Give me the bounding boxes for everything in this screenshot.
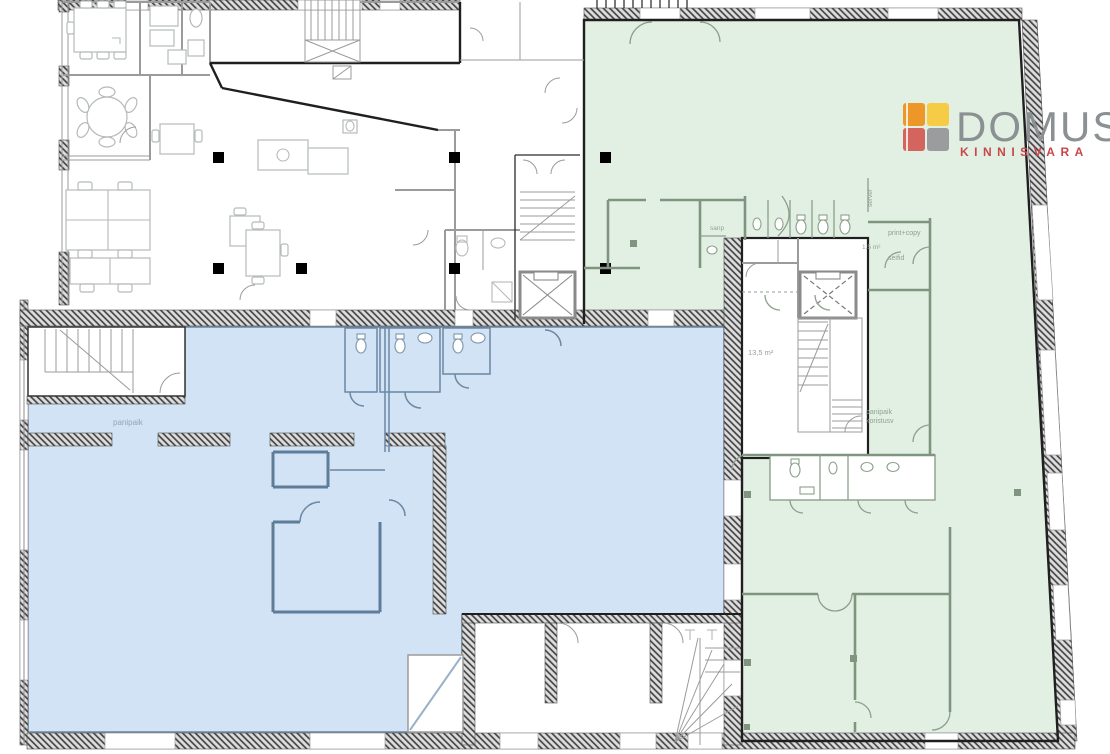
core-area-label: 13,5 m² [748, 348, 774, 357]
seifid-label: seifid [888, 255, 904, 262]
logo-mark-bottom-right [927, 128, 949, 151]
panipaik-koristusv-label-line2: koristusv [866, 418, 894, 425]
panipaik-koristusv-label-line1: panipaik [866, 409, 893, 416]
logo-mark-top-right [927, 103, 949, 126]
toilet-fixtures [796, 215, 850, 234]
panipaik-label-blue: panipaik [113, 418, 144, 427]
logo-brand-text: DOMUS [956, 103, 1110, 150]
floor-plan-drawing: 13,5 m² [0, 0, 1110, 754]
domus-logo: DOMUS KINNISVARA [903, 103, 1110, 159]
floor-plan-page: 13,5 m² [0, 0, 1110, 754]
logo-tagline-text: KINNISVARA [960, 145, 1089, 159]
print-copy-label: print+copy [888, 230, 921, 237]
server-label: server [867, 188, 874, 207]
area-1-5-label: 1,5 m² [862, 244, 881, 251]
sanp-label: sanp [710, 225, 724, 232]
